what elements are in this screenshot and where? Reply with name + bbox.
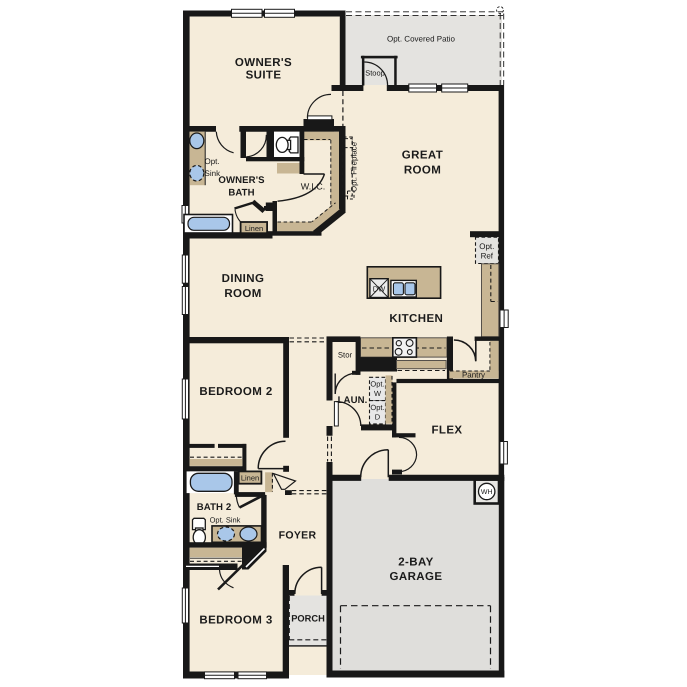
svg-text:Stoop: Stoop xyxy=(365,68,385,77)
svg-text:WH: WH xyxy=(481,489,493,496)
svg-text:FLEX: FLEX xyxy=(432,425,463,437)
svg-text:DINING: DINING xyxy=(222,273,265,285)
svg-text:DW: DW xyxy=(373,285,386,294)
svg-text:ROOM: ROOM xyxy=(224,288,261,300)
svg-text:SUITE: SUITE xyxy=(246,70,282,82)
svg-text:BATH: BATH xyxy=(228,188,254,199)
svg-text:OWNER'S: OWNER'S xyxy=(218,175,265,186)
svg-text:ROOM: ROOM xyxy=(404,165,441,177)
svg-text:Stor: Stor xyxy=(338,351,353,360)
svg-text:PORCH: PORCH xyxy=(291,613,325,623)
svg-text:GREAT: GREAT xyxy=(402,150,443,162)
svg-text:Opt.: Opt. xyxy=(205,157,220,166)
svg-text:W.I.C.: W.I.C. xyxy=(301,182,326,192)
svg-text:KITCHEN: KITCHEN xyxy=(389,313,443,325)
svg-text:Ref: Ref xyxy=(481,251,494,260)
svg-text:Opt.: Opt. xyxy=(370,403,384,412)
svg-text:FOYER: FOYER xyxy=(279,530,317,542)
svg-text:Opt. Fireplace: Opt. Fireplace xyxy=(350,141,359,192)
svg-text:GARAGE: GARAGE xyxy=(390,571,443,583)
svg-text:OWNER'S: OWNER'S xyxy=(235,57,292,69)
svg-text:Linen: Linen xyxy=(241,474,259,483)
svg-text:D: D xyxy=(375,413,381,422)
svg-text:BATH 2: BATH 2 xyxy=(197,502,232,513)
svg-text:LAUN.: LAUN. xyxy=(338,395,368,406)
svg-text:Opt. Covered Patio: Opt. Covered Patio xyxy=(387,35,456,44)
svg-text:Opt.: Opt. xyxy=(370,380,384,389)
svg-text:BEDROOM 2: BEDROOM 2 xyxy=(199,386,272,398)
svg-text:Linen: Linen xyxy=(245,224,263,233)
svg-text:Pantry: Pantry xyxy=(462,371,485,380)
svg-text:W: W xyxy=(374,389,382,398)
svg-text:2-BAY: 2-BAY xyxy=(398,557,433,569)
svg-text:BEDROOM 3: BEDROOM 3 xyxy=(199,615,272,627)
svg-text:Opt. Sink: Opt. Sink xyxy=(210,515,241,524)
svg-text:Opt.: Opt. xyxy=(479,242,494,251)
